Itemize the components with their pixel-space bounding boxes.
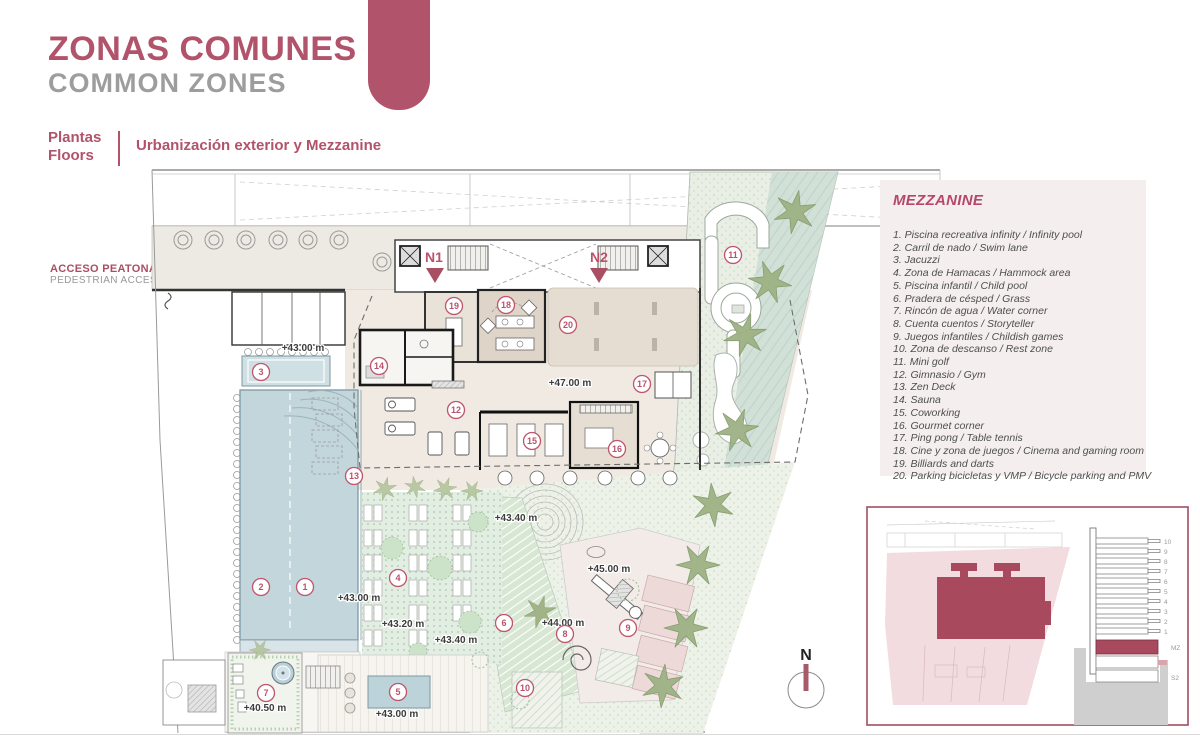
legend-item: 19. Billiards and darts bbox=[893, 458, 1134, 471]
floor-label: 3 bbox=[1164, 609, 1168, 616]
floor-label: S2 bbox=[1171, 675, 1179, 682]
legend-item: 16. Gourmet corner bbox=[893, 420, 1134, 433]
storage-room bbox=[163, 660, 225, 725]
legend-item: 14. Sauna bbox=[893, 394, 1134, 407]
floor-label: 4 bbox=[1164, 599, 1168, 606]
pedestrian-access-label: ACCESO PEATONAL PEDESTRIAN ACCESS bbox=[50, 263, 164, 286]
core-n1-label: N1 bbox=[425, 249, 443, 265]
level-label: +43.20 m bbox=[382, 619, 425, 630]
legend-item: 4. Zona de Hamacas / Hammock area bbox=[893, 267, 1134, 280]
core-n2-label: N2 bbox=[590, 249, 608, 265]
zone-marker: 11 bbox=[728, 250, 738, 260]
zone-marker: 1 bbox=[302, 582, 307, 592]
zone-marker: 14 bbox=[374, 361, 384, 371]
zone-marker: 5 bbox=[395, 687, 400, 697]
legend-item: 10. Zona de descanso / Rest zone bbox=[893, 343, 1134, 356]
zone-marker: 20 bbox=[563, 320, 573, 330]
zone-marker: 10 bbox=[520, 683, 530, 693]
hammock-area bbox=[362, 492, 502, 664]
keyplan-inset: 10 9 8 7 6 5 4 3 2 1 MZ S2 bbox=[865, 505, 1190, 727]
header-divider bbox=[118, 131, 120, 166]
zone-marker: 19 bbox=[449, 301, 459, 311]
plan-section-title: Urbanización exterior y Mezzanine bbox=[136, 137, 381, 154]
floor-label: 6 bbox=[1164, 579, 1168, 586]
section-label: Plantas Floors bbox=[48, 129, 101, 165]
level-label: +47.00 m bbox=[549, 378, 592, 389]
floor-label: 9 bbox=[1164, 549, 1168, 556]
zone-marker: 4 bbox=[395, 573, 400, 583]
access-label-es: ACCESO PEATONAL bbox=[50, 263, 164, 275]
zone-marker: 13 bbox=[349, 471, 359, 481]
site-plan-drawing: N1 N2 +43.00 m +47.00 m +43.40 m +43.00 … bbox=[150, 165, 945, 735]
page-subtitle: COMMON ZONES bbox=[48, 68, 287, 99]
legend-item: 5. Piscina infantil / Child pool bbox=[893, 280, 1134, 293]
north-arrow: N bbox=[788, 647, 824, 708]
level-label: +43.00 m bbox=[338, 593, 381, 604]
legend-item: 3. Jacuzzi bbox=[893, 254, 1134, 267]
level-label: +40.50 m bbox=[244, 703, 287, 714]
legend-item: 6. Pradera de césped / Grass bbox=[893, 293, 1134, 306]
floor-label: 2 bbox=[1164, 619, 1168, 626]
zone-marker: 18 bbox=[501, 300, 511, 310]
floor-label: 5 bbox=[1164, 589, 1168, 596]
floor-label: 8 bbox=[1164, 559, 1168, 566]
floor-label: 10 bbox=[1164, 539, 1172, 546]
level-label: +43.00 m bbox=[282, 343, 325, 354]
north-needle-icon bbox=[804, 664, 809, 691]
page-bottom-rule bbox=[0, 734, 1200, 735]
zone-marker: 15 bbox=[527, 436, 537, 446]
section-mezzanine-floor bbox=[1096, 640, 1158, 654]
section-label-es: Plantas bbox=[48, 129, 101, 147]
legend-item: 15. Coworking bbox=[893, 407, 1134, 420]
zone-marker: 3 bbox=[258, 367, 263, 377]
legend-item: 18. Cine y zona de juegos / Cinema and g… bbox=[893, 445, 1134, 458]
legend-item: 11. Mini golf bbox=[893, 356, 1134, 369]
keyplan-footprint bbox=[937, 577, 1045, 639]
floor-label: 7 bbox=[1164, 569, 1168, 576]
level-label: +43.40 m bbox=[435, 635, 478, 646]
legend-item: 8. Cuenta cuentos / Storyteller bbox=[893, 318, 1134, 331]
zone-marker: 7 bbox=[263, 688, 268, 698]
legend-items: 1. Piscina recreativa infinity / Infinit… bbox=[893, 229, 1134, 483]
zone-marker: 12 bbox=[451, 405, 461, 415]
level-label: +43.00 m bbox=[376, 709, 419, 720]
zone-marker: 16 bbox=[612, 444, 622, 454]
zone-marker: 8 bbox=[562, 629, 567, 639]
legend-item: 13. Zen Deck bbox=[893, 381, 1134, 394]
zone-marker: 2 bbox=[258, 582, 263, 592]
legend-item: 1. Piscina recreativa infinity / Infinit… bbox=[893, 229, 1134, 242]
floor-label: MZ bbox=[1171, 645, 1180, 652]
floor-label: 1 bbox=[1164, 629, 1168, 636]
section-label-en: Floors bbox=[48, 147, 101, 165]
zone-marker: 6 bbox=[501, 618, 506, 628]
legend-item: 17. Ping pong / Table tennis bbox=[893, 432, 1134, 445]
zone-marker: 17 bbox=[637, 379, 647, 389]
legend-item: 2. Carril de nado / Swim lane bbox=[893, 242, 1134, 255]
level-label: +45.00 m bbox=[588, 564, 631, 575]
zone-marker: 9 bbox=[625, 623, 630, 633]
legend-item: 20. Parking bicicletas y VMP / Bicycle p… bbox=[893, 470, 1134, 483]
page-title: ZONAS COMUNES bbox=[48, 30, 357, 69]
rest-zone-deck bbox=[512, 672, 562, 728]
north-label: N bbox=[800, 647, 812, 664]
legend-item: 12. Gimnasio / Gym bbox=[893, 369, 1134, 382]
lower-garden bbox=[460, 462, 795, 733]
legend-title: MEZZANINE bbox=[893, 192, 1134, 209]
level-label: +43.40 m bbox=[495, 513, 538, 524]
legend-item: 7. Rincón de agua / Water corner bbox=[893, 305, 1134, 318]
access-label-en: PEDESTRIAN ACCESS bbox=[50, 275, 164, 286]
legend-item: 9. Juegos infantiles / Childish games bbox=[893, 331, 1134, 344]
brand-tab-shape bbox=[368, 0, 430, 110]
legend-panel: MEZZANINE 1. Piscina recreativa infinity… bbox=[880, 180, 1146, 476]
